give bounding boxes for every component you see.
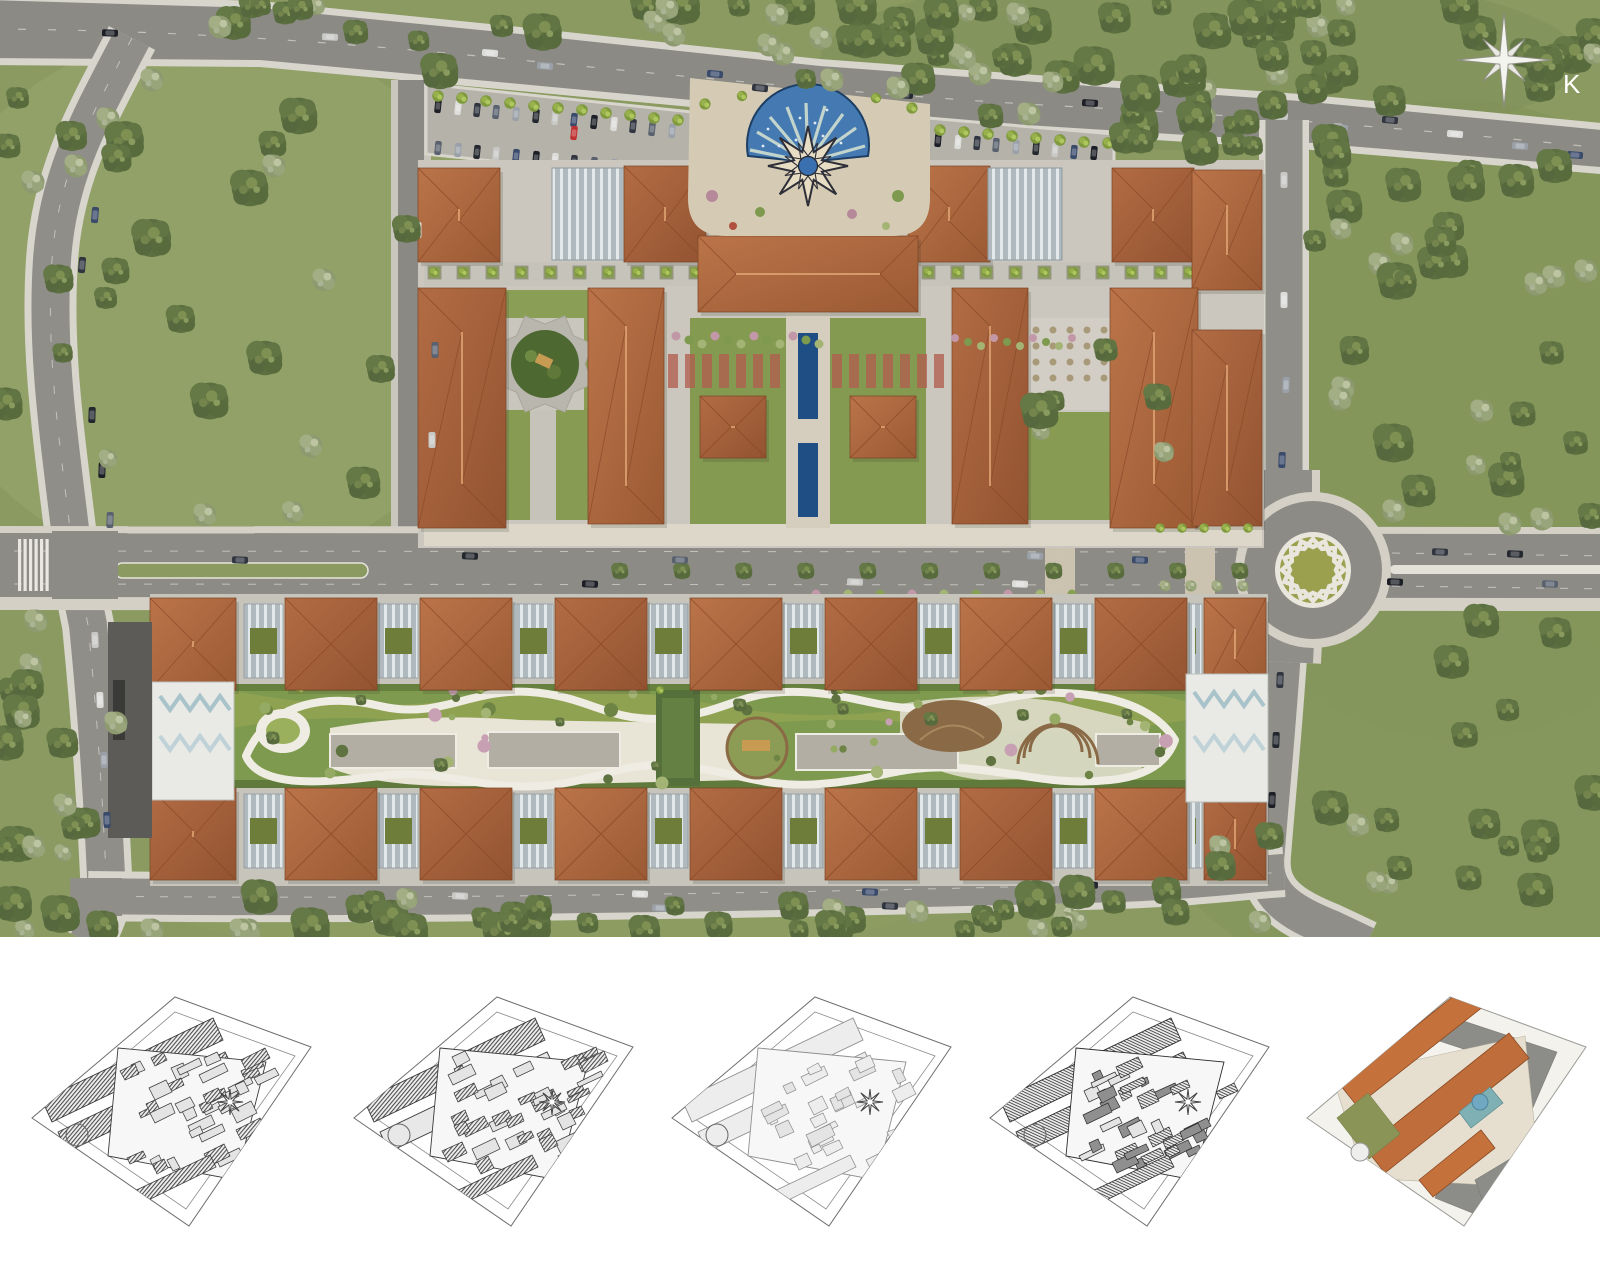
svg-text:K: K: [1563, 69, 1581, 99]
